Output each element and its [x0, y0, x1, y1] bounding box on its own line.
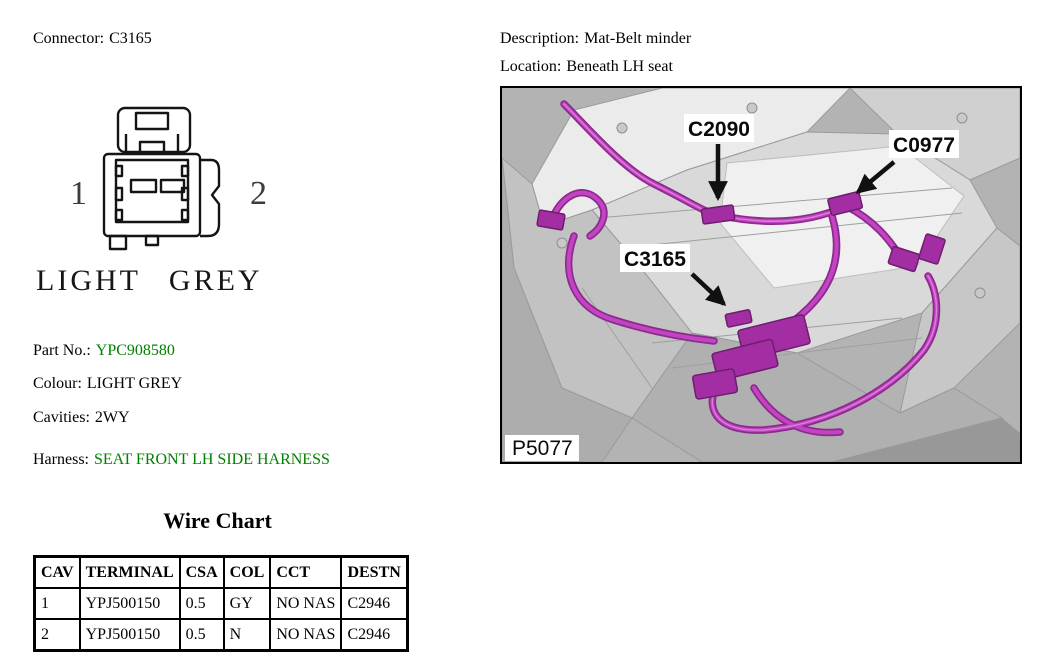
pin-2-label: 2: [250, 175, 267, 212]
cell-col: GY: [224, 588, 271, 619]
cell-cct: NO NAS: [270, 619, 341, 651]
col-header-terminal: TERMINAL: [80, 557, 180, 589]
harness-label: Harness:: [33, 451, 89, 468]
col-header-destn: DESTN: [341, 557, 407, 589]
description-label: Description:: [500, 30, 579, 47]
cell-cav: 2: [35, 619, 80, 651]
pin-1-label: 1: [70, 175, 87, 212]
location-label: Location:: [500, 58, 561, 75]
part-no-link[interactable]: YPC908580: [96, 342, 175, 359]
c3165-callout-label: C3165: [624, 248, 686, 271]
connector-face-diagram: 1 2: [30, 96, 310, 260]
table-header-row: CAV TERMINAL CSA COL CCT DESTN: [35, 557, 408, 589]
location-heading: Location:Beneath LH seat: [500, 58, 673, 76]
c2090-callout-label: C2090: [688, 118, 750, 141]
cell-terminal: YPJ500150: [80, 588, 180, 619]
col-header-cct: CCT: [270, 557, 341, 589]
description-heading: Description:Mat-Belt minder: [500, 30, 691, 48]
location-value: Beneath LH seat: [566, 58, 673, 75]
part-no-label: Part No.:: [33, 342, 91, 359]
col-header-cav: CAV: [35, 557, 80, 589]
cell-destn: C2946: [341, 619, 407, 651]
colour-value: LIGHT GREY: [87, 375, 182, 392]
cell-cav: 1: [35, 588, 80, 619]
harness-link[interactable]: SEAT FRONT LH SIDE HARNESS: [94, 451, 330, 468]
table-row: 2 YPJ500150 0.5 N NO NAS C2946: [35, 619, 408, 651]
cavities-label: Cavities:: [33, 409, 90, 426]
cell-csa: 0.5: [180, 588, 224, 619]
connector-spec-page: Connector:C3165 Description:Mat-Belt min…: [0, 0, 1044, 660]
c0977-callout-label: C0977: [893, 134, 955, 157]
cavities-row: Cavities:2WY: [33, 409, 130, 427]
connector-colour-caption: LIGHT GREY: [36, 264, 316, 298]
figure-id-label: P5077: [512, 437, 573, 460]
colour-row: Colour:LIGHT GREY: [33, 375, 182, 393]
seat-harness-illustration: C2090 C0977 C3165 P5077: [502, 88, 1020, 462]
cell-terminal: YPJ500150: [80, 619, 180, 651]
wire-chart-title: Wire Chart: [130, 508, 305, 534]
cell-cct: NO NAS: [270, 588, 341, 619]
part-no-row: Part No.:YPC908580: [33, 342, 175, 360]
harness-row: Harness:SEAT FRONT LH SIDE HARNESS: [33, 451, 330, 469]
colour-label: Colour:: [33, 375, 82, 392]
connector-outline: [104, 108, 219, 249]
col-header-csa: CSA: [180, 557, 224, 589]
connector-label: Connector:: [33, 30, 104, 47]
description-value: Mat-Belt minder: [584, 30, 691, 47]
cavities-value: 2WY: [95, 409, 130, 426]
cell-col: N: [224, 619, 271, 651]
location-figure: C2090 C0977 C3165 P5077: [500, 86, 1022, 464]
col-header-col: COL: [224, 557, 271, 589]
cell-csa: 0.5: [180, 619, 224, 651]
table-row: 1 YPJ500150 0.5 GY NO NAS C2946: [35, 588, 408, 619]
cell-destn: C2946: [341, 588, 407, 619]
connector-value: C3165: [109, 30, 152, 47]
wire-chart-table: CAV TERMINAL CSA COL CCT DESTN 1 YPJ5001…: [33, 555, 409, 652]
connector-heading: Connector:C3165: [33, 30, 152, 48]
